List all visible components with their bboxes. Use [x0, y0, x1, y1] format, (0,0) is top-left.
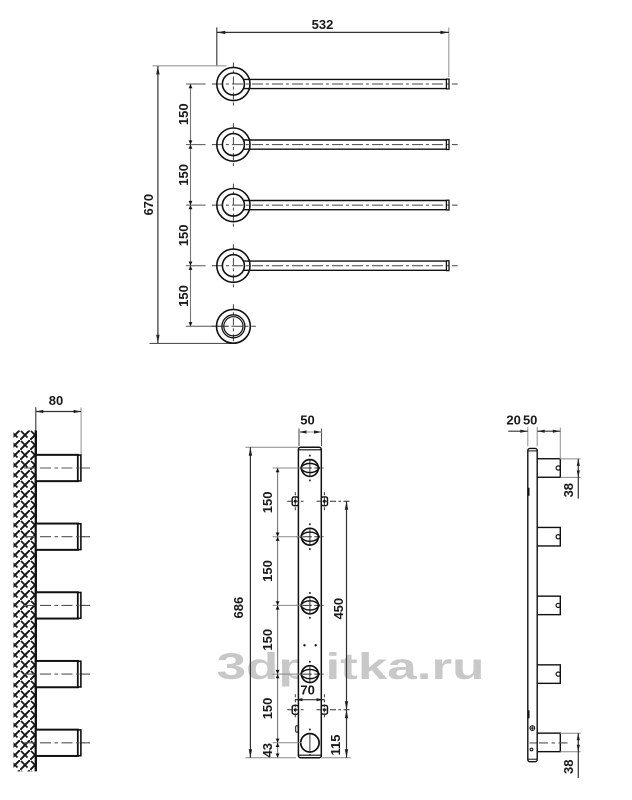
- svg-text:20: 20: [506, 412, 520, 427]
- svg-text:80: 80: [49, 393, 63, 408]
- svg-text:38: 38: [561, 760, 576, 774]
- svg-text:150: 150: [260, 560, 275, 582]
- svg-text:150: 150: [260, 491, 275, 513]
- svg-text:115: 115: [328, 735, 343, 756]
- svg-text:450: 450: [331, 598, 346, 620]
- svg-text:150: 150: [260, 698, 275, 720]
- svg-text:50: 50: [300, 412, 314, 427]
- svg-text:43: 43: [260, 743, 275, 757]
- svg-text:686: 686: [231, 597, 246, 619]
- svg-text:38: 38: [561, 483, 576, 497]
- svg-text:150: 150: [176, 225, 191, 247]
- svg-text:3dplitka.ru: 3dplitka.ru: [217, 646, 485, 687]
- svg-text:150: 150: [176, 164, 191, 186]
- svg-text:150: 150: [176, 285, 191, 307]
- svg-text:150: 150: [260, 629, 275, 651]
- svg-text:150: 150: [176, 103, 191, 125]
- svg-text:532: 532: [312, 17, 334, 32]
- svg-text:50: 50: [523, 412, 537, 427]
- svg-text:670: 670: [141, 194, 156, 216]
- svg-text:70: 70: [300, 682, 314, 697]
